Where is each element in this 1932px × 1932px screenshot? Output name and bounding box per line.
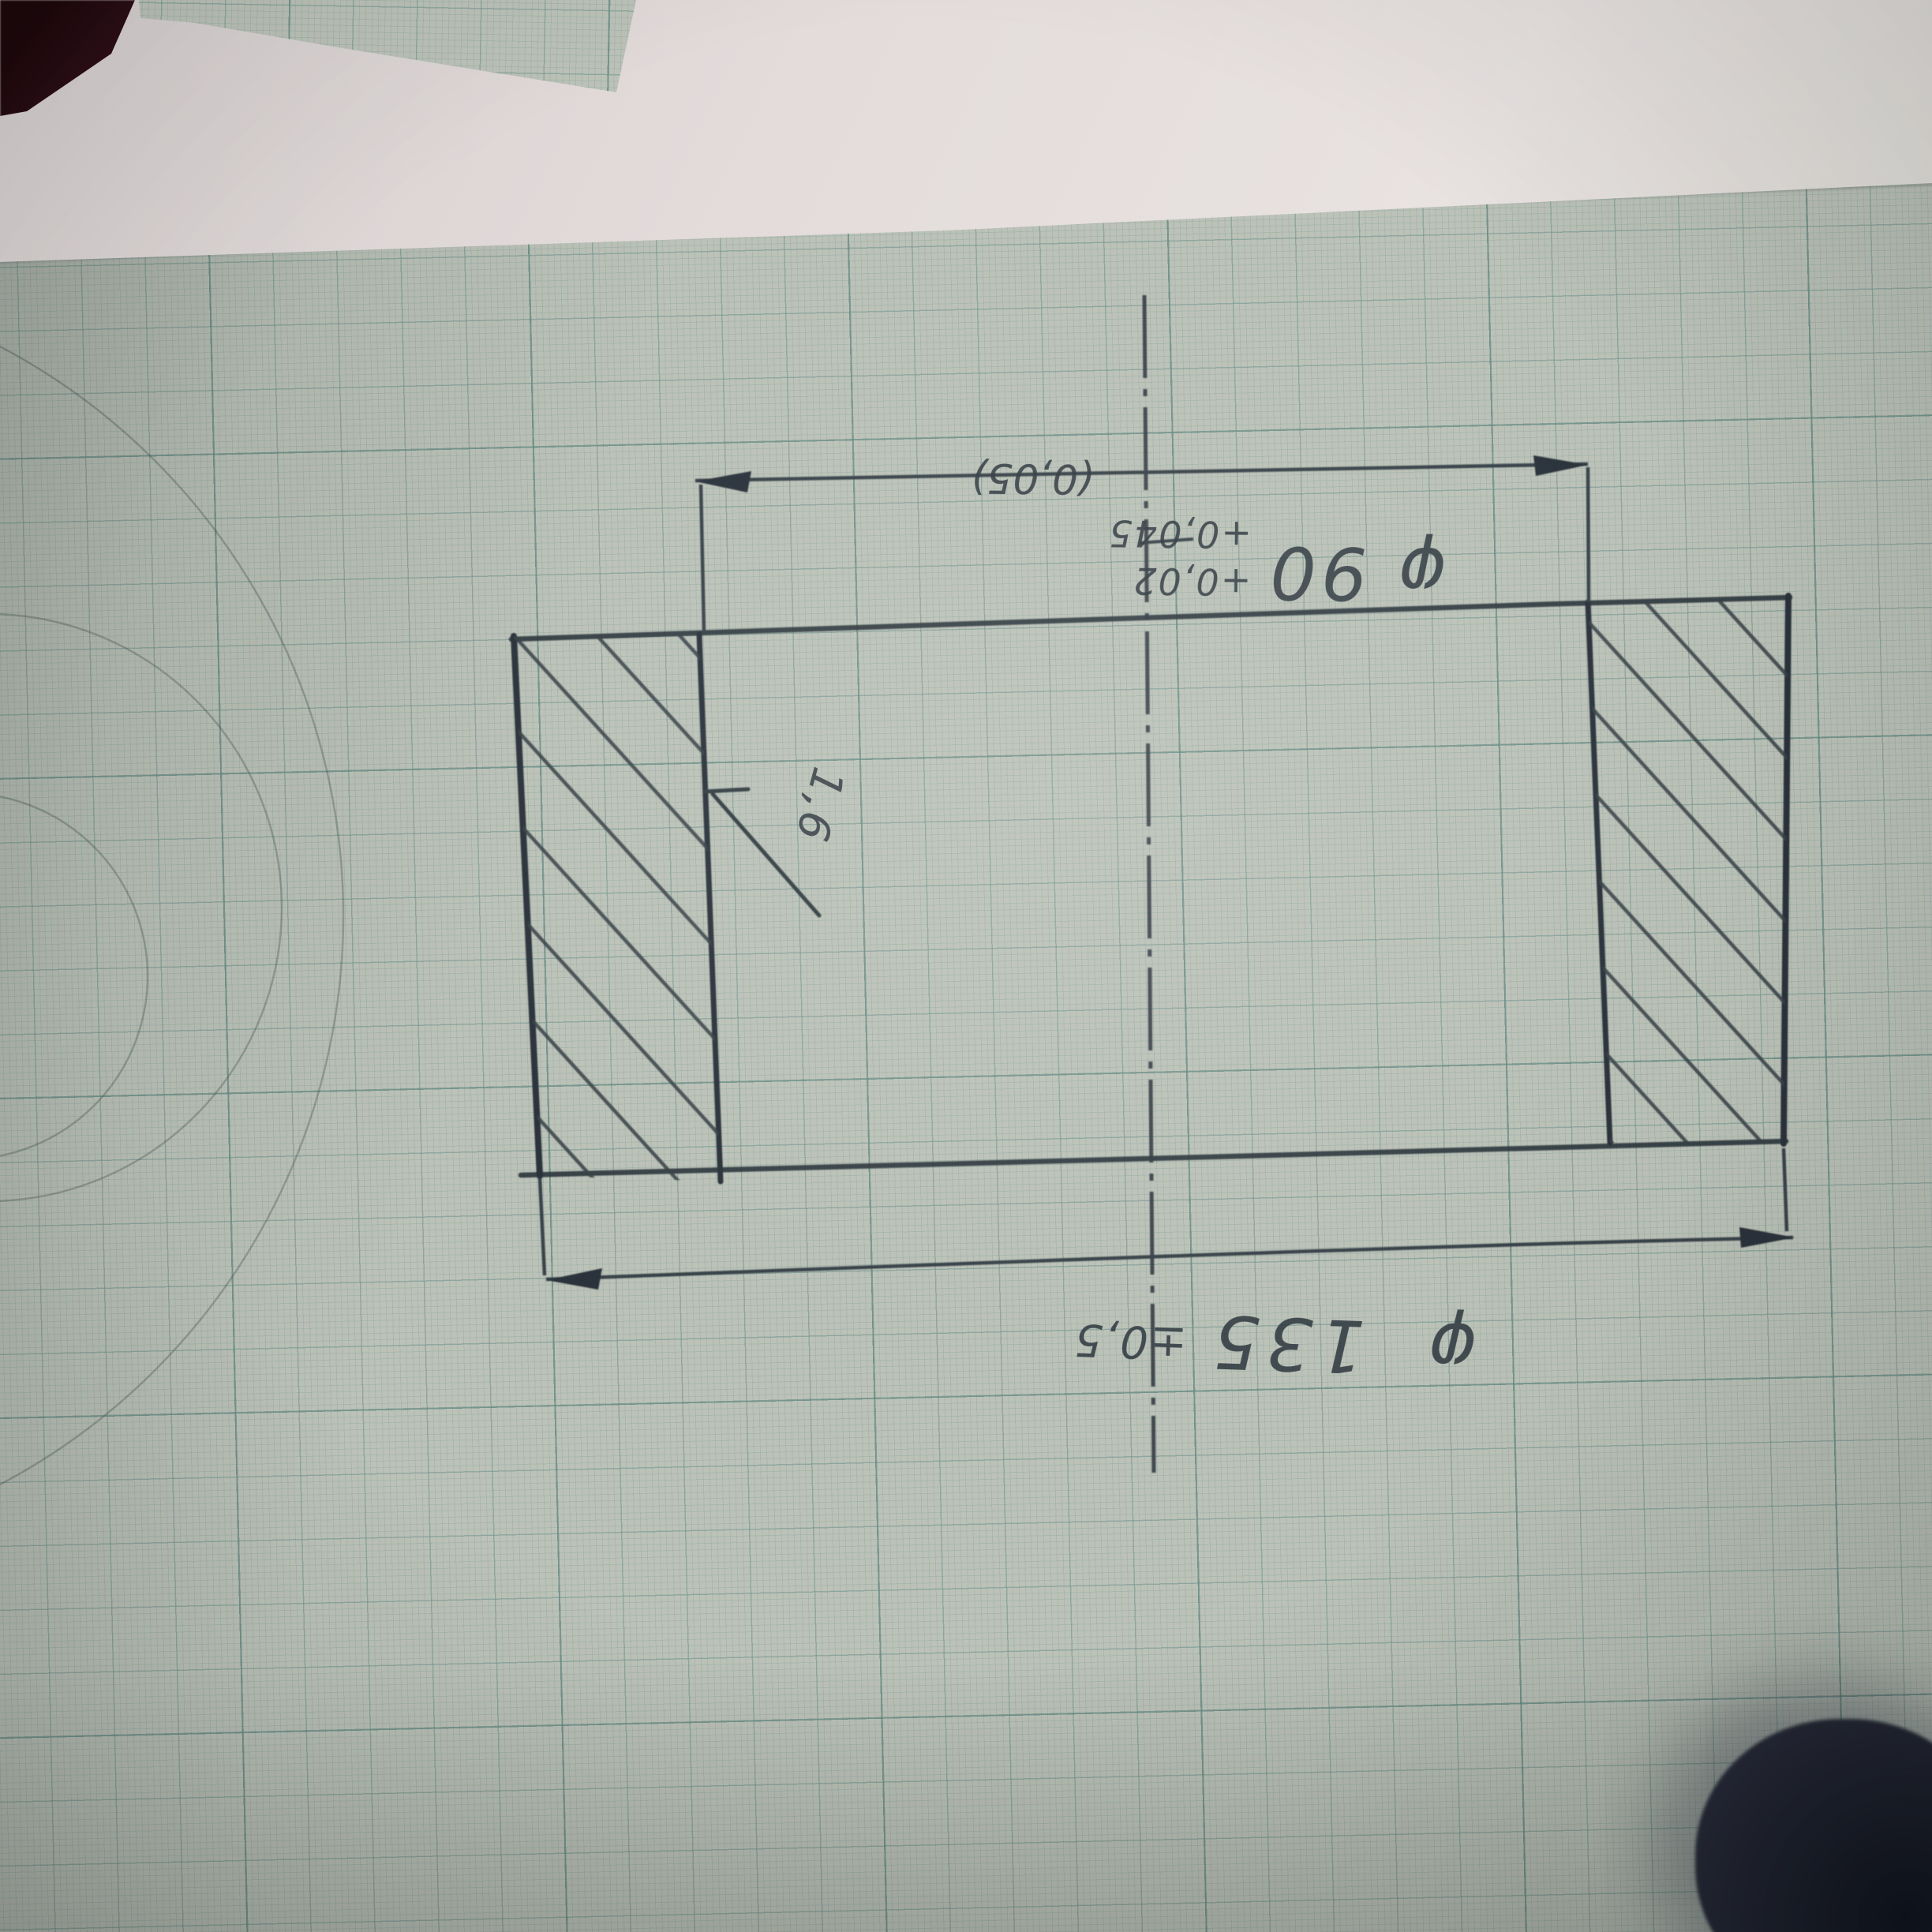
right-wall-outer-edge <box>1784 596 1788 1144</box>
bore-extension-line-left <box>701 485 704 631</box>
diameter-symbol: φ <box>1422 1306 1479 1392</box>
diameter-symbol: φ <box>1395 531 1448 616</box>
bore-nominal: 90 <box>1265 530 1368 615</box>
construction-circle-large <box>0 272 343 1559</box>
bore-extension-line-right <box>1588 467 1589 602</box>
bore-tolerance-lower: +0,045 <box>1107 509 1252 558</box>
section-drawing-svg <box>0 0 1932 1932</box>
bore-tolerance-stack: +0,02 +0,045 <box>1107 509 1252 605</box>
outer-extension-line-right <box>1784 1148 1787 1231</box>
graph-paper-sheet: φ 90 +0,02 +0,045 (0,05) φ 135 ±0,5 1,6 <box>0 0 1932 1932</box>
outer-extension-line-left <box>540 1178 545 1275</box>
bore-arrow-left <box>695 471 751 492</box>
outer-nominal: 135 <box>1206 1298 1366 1388</box>
outer-tolerance: ±0,5 <box>1073 1313 1188 1368</box>
outer-dimension-text: φ 135 <box>1206 1301 1479 1390</box>
left-wall-bore-edge <box>699 635 721 1181</box>
bore-dimension-label: φ 90 +0,02 +0,045 (0,05) <box>1012 449 1449 610</box>
construction-circle-inner <box>0 793 148 1159</box>
bore-note: (0,05) <box>971 454 1095 503</box>
bore-dimension-text: φ 90 <box>1265 535 1448 609</box>
right-wall-bore-edge <box>1588 602 1610 1143</box>
photo-of-drawing: φ 90 +0,02 +0,045 (0,05) φ 135 ±0,5 1,6 <box>0 0 1932 1932</box>
part-outline-bottom <box>521 1141 1786 1175</box>
bore-arrow-right <box>1533 455 1588 476</box>
outer-dimension-label: φ 135 ±0,5 <box>1151 1243 1481 1390</box>
construction-circle-outer <box>0 614 282 1201</box>
right-wall-hatch <box>1097 576 1932 1236</box>
left-wall-outer-edge <box>514 636 540 1176</box>
bore-tolerance-upper: +0,02 <box>1107 556 1252 605</box>
outer-arrow-left <box>546 1268 602 1290</box>
